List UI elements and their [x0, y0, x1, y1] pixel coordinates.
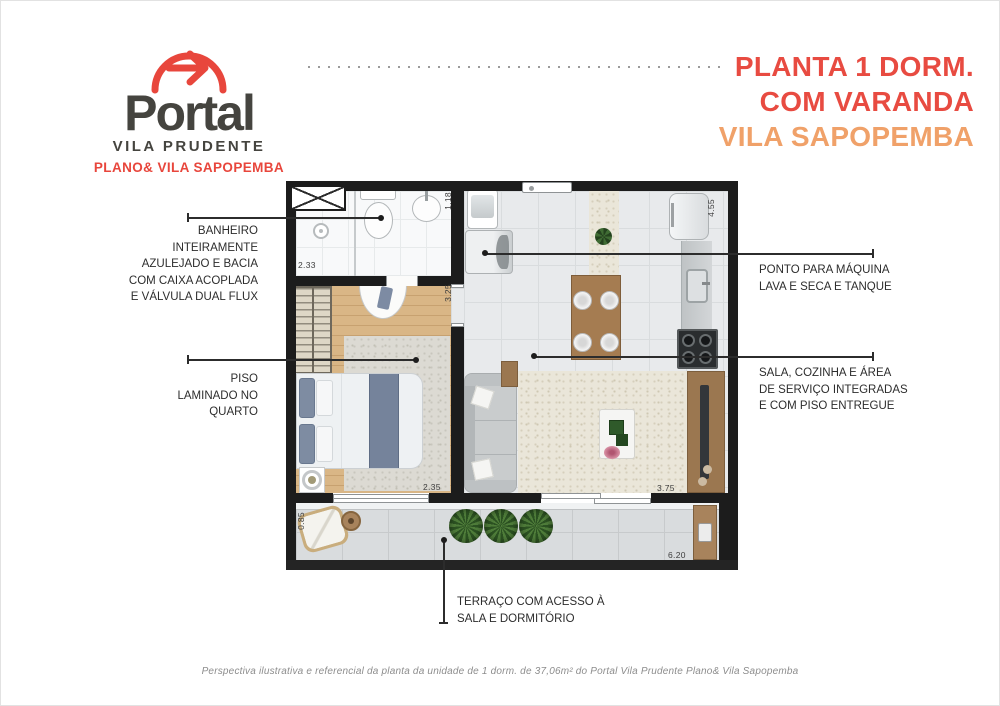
plate	[600, 291, 619, 310]
washing-machine-door	[496, 235, 509, 269]
note-line: TERRAÇO COM ACESSO À	[457, 594, 605, 611]
fridge	[669, 193, 709, 240]
title-line-1: PLANTA 1 DORM.	[719, 49, 974, 84]
note-line: E COM PISO ENTREGUE	[759, 398, 908, 415]
leader-terrace	[443, 540, 445, 623]
bedroom-window	[333, 494, 429, 503]
table-plant	[616, 434, 628, 446]
terrace-side-table	[341, 511, 361, 531]
table-plant	[609, 420, 624, 435]
pouf-center	[308, 476, 316, 484]
leader-washer-dot	[482, 250, 488, 256]
title-line-2: COM VARANDA	[719, 84, 974, 119]
leader-bathroom-dot	[378, 215, 384, 221]
bed-pillow-white	[316, 426, 333, 462]
note-line: SALA, COZINHA E ÁREA	[759, 365, 908, 382]
note-line: DE SERVIÇO INTEGRADAS	[759, 382, 908, 399]
note-laminate: PISO LAMINADO NO QUARTO	[151, 371, 258, 421]
shower-partition	[354, 191, 356, 276]
dim-bathroom-width: 2.33	[298, 260, 316, 270]
shower-drain-dot	[319, 229, 323, 233]
wall-left	[286, 181, 296, 503]
leader-living	[534, 356, 873, 358]
leader-washer-tick	[872, 249, 874, 258]
sofa-seam	[475, 420, 516, 421]
brand-name: Portal	[89, 91, 289, 135]
bed-pillow-blue	[299, 424, 315, 464]
bed-throw	[369, 374, 399, 468]
wall-bottom-seg	[429, 493, 541, 503]
kitchen-faucet	[702, 282, 710, 285]
bedroom-door-jamb	[451, 323, 464, 327]
leader-living-tick	[872, 352, 874, 361]
kitchen-sink	[686, 269, 708, 303]
terrace-plant	[449, 509, 483, 543]
dim-living-width: 3.75	[657, 483, 675, 493]
sofa-armrest	[465, 480, 516, 492]
note-line: LAMINADO NO	[151, 388, 258, 405]
dim-terrace-depth: 0.85	[296, 506, 306, 536]
note-washer: PONTO PARA MÁQUINA LAVA E SECA E TANQUE	[759, 262, 892, 295]
plate	[600, 333, 619, 352]
wall-top	[286, 181, 738, 191]
sofa-seam	[475, 454, 516, 455]
leader-washer	[485, 253, 873, 255]
lounge-cushion	[299, 507, 347, 551]
bed-pillow-white	[316, 380, 333, 416]
dotted-divider	[308, 66, 728, 68]
runner-plant	[595, 228, 612, 245]
brand-tagline: PLANO& VILA SAPOPEMBA	[89, 160, 289, 175]
stove-burner	[682, 334, 695, 347]
plate	[573, 333, 592, 352]
wall-bath-bedroom	[286, 276, 386, 286]
leader-bathroom-tick	[187, 213, 189, 222]
note-line: AZULEJADO E BACIA	[121, 256, 258, 273]
stove-burner	[699, 334, 712, 347]
door-handle	[698, 523, 712, 542]
stove-burner	[699, 351, 712, 364]
note-line: SALA E DORMITÓRIO	[457, 611, 605, 628]
page-title: PLANTA 1 DORM. COM VARANDA VILA SAPOPEMB…	[719, 49, 974, 154]
sideboard-decor	[698, 477, 707, 486]
wall-right	[728, 181, 738, 503]
throw-pillow	[471, 458, 494, 481]
leader-living-dot	[531, 353, 537, 359]
terrace-plant	[519, 509, 553, 543]
note-line: QUARTO	[151, 404, 258, 421]
stove-burner	[682, 351, 695, 364]
plate	[573, 291, 592, 310]
bed-fold	[341, 374, 342, 468]
note-line: PISO	[151, 371, 258, 388]
floor-plan: 2.33 1.18 3.25 2.35 4.55 3.75 6.20 0.85	[286, 181, 741, 581]
note-living: SALA, COZINHA E ÁREA DE SERVIÇO INTEGRAD…	[759, 365, 908, 415]
terrace-wall-right	[719, 493, 738, 560]
brand-subtitle: VILA PRUDENTE	[89, 138, 289, 155]
dim-service-width: 1.18	[443, 186, 453, 216]
note-line: E VÁLVULA DUAL FLUX	[121, 289, 258, 306]
brand-logo: Portal VILA PRUDENTE PLANO& VILA SAPOPEM…	[89, 37, 289, 175]
table-item	[348, 518, 354, 524]
terrace-threshold	[296, 503, 719, 510]
wardrobe	[294, 286, 332, 374]
bathroom-door-jamb	[386, 276, 418, 286]
stove	[677, 329, 718, 369]
terrace-wall-bottom	[286, 560, 738, 570]
note-line: BANHEIRO	[121, 223, 258, 240]
leader-terrace-dot	[441, 537, 447, 543]
note-line: LAVA E SECA E TANQUE	[759, 279, 892, 296]
entry-door-handle	[529, 186, 534, 191]
fridge-handle	[671, 203, 674, 227]
bed	[296, 373, 423, 469]
sideboard-decor	[703, 465, 712, 474]
leader-terrace-tick	[439, 622, 448, 624]
terrace-wall-left	[286, 493, 296, 560]
bedroom-pouf	[299, 467, 325, 493]
bed-pillow-blue	[299, 378, 315, 418]
wall-bedroom-living	[451, 327, 464, 503]
towel	[377, 286, 393, 310]
side-table	[501, 361, 518, 387]
window-mullion	[334, 498, 428, 499]
sliding-door-panel	[594, 498, 651, 504]
note-bathroom: BANHEIRO INTEIRAMENTE AZULEJADO E BACIA …	[121, 223, 258, 306]
note-line: PONTO PARA MÁQUINA	[759, 262, 892, 279]
dim-bedroom-width: 2.35	[423, 482, 441, 492]
table-flowers	[604, 446, 620, 459]
title-line-3: VILA SAPOPEMBA	[719, 119, 974, 154]
terrace-plant	[484, 509, 518, 543]
entry-door	[522, 182, 572, 193]
note-terrace: TERRAÇO COM ACESSO À SALA E DORMITÓRIO	[457, 594, 605, 627]
dim-terrace-width: 6.20	[668, 550, 686, 560]
leader-laminate	[188, 359, 416, 361]
flyer-page: Portal VILA PRUDENTE PLANO& VILA SAPOPEM…	[0, 0, 1000, 706]
leader-laminate-dot	[413, 357, 419, 363]
coffee-table	[599, 409, 635, 459]
leader-bathroom	[188, 217, 381, 219]
terrace-door	[693, 505, 717, 560]
leader-laminate-tick	[187, 355, 189, 364]
dim-kitchen-depth: 4.55	[706, 193, 716, 223]
dim-bedroom-depth: 3.25	[443, 278, 453, 308]
disclaimer: Perspectiva ilustrativa e referencial da…	[1, 666, 999, 677]
sofa	[464, 373, 517, 493]
note-line: COM CAIXA ACOPLADA	[121, 273, 258, 290]
note-line: INTEIRAMENTE	[121, 240, 258, 257]
sliding-door-panel	[541, 493, 601, 499]
laundry-tank-basin	[471, 195, 494, 218]
vent-shaft	[290, 185, 346, 211]
